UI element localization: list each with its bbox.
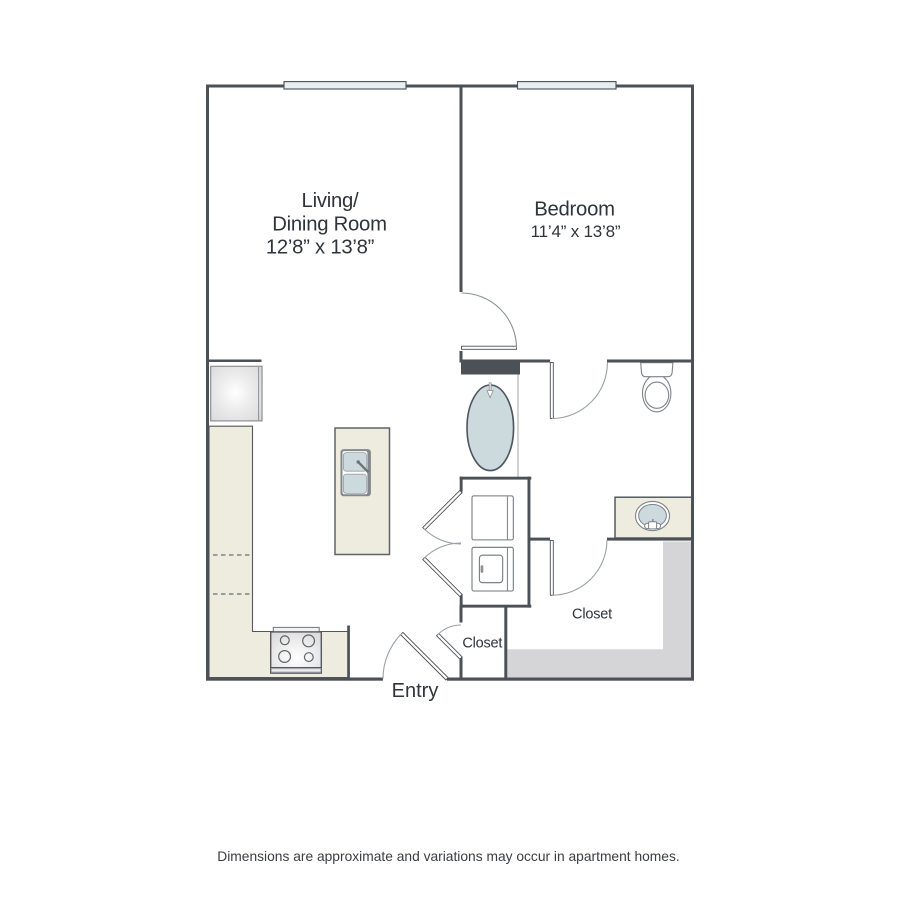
svg-text:12’8” x 13’8”: 12’8” x 13’8” [266, 237, 375, 259]
svg-text:Dimensions are approximate and: Dimensions are approximate and variation… [217, 849, 679, 864]
svg-text:11’4” x 13’8”: 11’4” x 13’8” [531, 222, 621, 241]
svg-text:Living/: Living/ [302, 190, 359, 212]
svg-text:Bedroom: Bedroom [534, 199, 615, 221]
svg-text:Entry: Entry [392, 680, 439, 702]
svg-text:Closet: Closet [572, 607, 612, 623]
svg-text:Closet: Closet [462, 636, 502, 652]
svg-text:Dining Room: Dining Room [272, 214, 386, 236]
